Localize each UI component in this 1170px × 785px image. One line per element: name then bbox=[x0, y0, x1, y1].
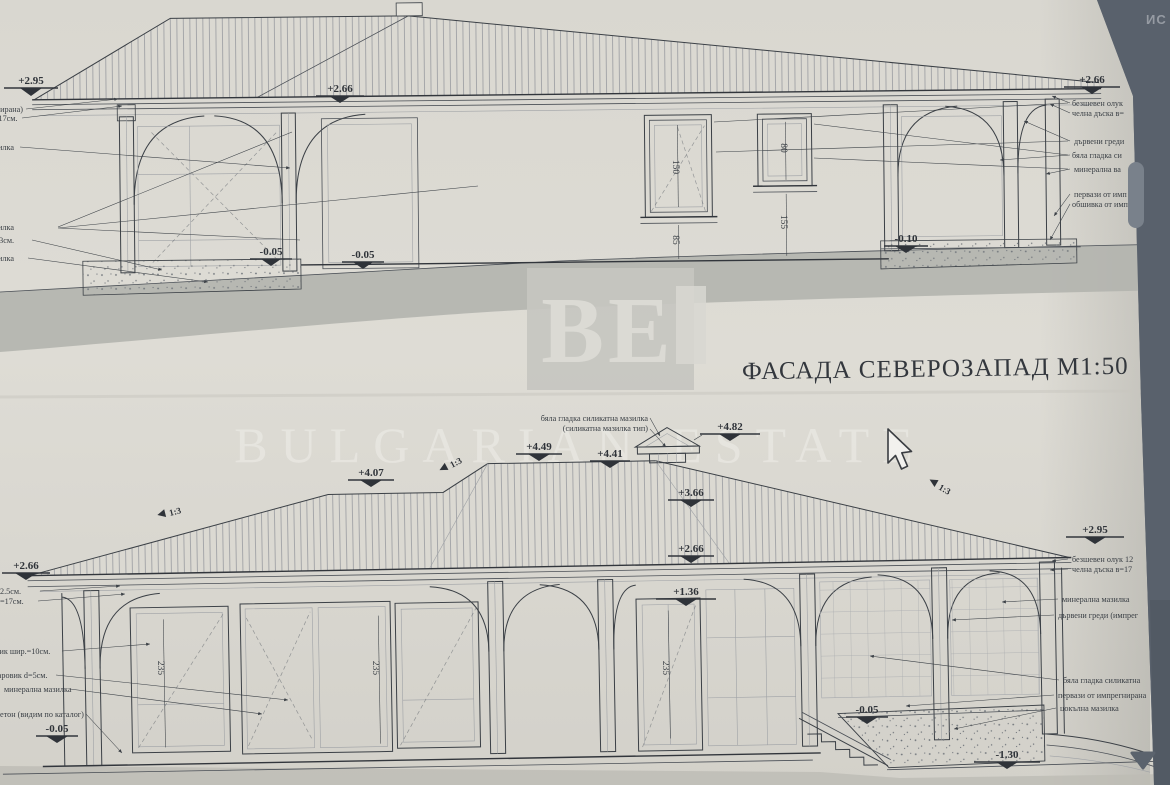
level-mark-label: +4.07 bbox=[358, 467, 384, 479]
corner-text: ИС bbox=[1146, 12, 1167, 27]
level-mark-label: +4.41 bbox=[597, 448, 623, 460]
level-mark-label: -0.10 bbox=[895, 233, 918, 245]
material-note: варовик шир.=10см. bbox=[0, 647, 50, 656]
level-mark-label: -0.05 bbox=[260, 246, 283, 258]
material-note: мазилка bbox=[0, 143, 14, 152]
dim-label: 235 bbox=[660, 661, 670, 676]
level-mark-label: +3.66 bbox=[678, 487, 704, 499]
level-mark-label: +1.36 bbox=[673, 586, 699, 598]
dim-label: 155 bbox=[778, 215, 788, 230]
material-note: бяла гладка силикатна bbox=[1063, 676, 1141, 685]
material-note: цокълна мазилка bbox=[1060, 704, 1119, 713]
level-mark-label: -0.05 bbox=[352, 249, 375, 261]
material-note: безшевен олук bbox=[1072, 99, 1123, 108]
material-note: дървени греди bbox=[1074, 137, 1125, 146]
material-note: обшивка от имп bbox=[1072, 200, 1129, 209]
material-note: минерална ва bbox=[1074, 165, 1121, 174]
level-mark-label: +2.95 bbox=[1082, 524, 1108, 536]
material-note: (импрегнирана) bbox=[0, 105, 23, 114]
blueprint-photo-view: BE BULGARIAN ESTATE bbox=[0, 0, 1170, 785]
material-note: =17см. bbox=[0, 597, 24, 606]
material-note: бетон (видим по каталог) bbox=[0, 710, 84, 719]
material-note: бяла гладка си bbox=[1072, 151, 1122, 160]
material-note: 2.5см. bbox=[0, 587, 21, 596]
level-mark-label: +4.49 bbox=[526, 441, 552, 453]
material-note: первази от импрегнирана bbox=[1058, 691, 1147, 700]
material-note: мазилка bbox=[0, 223, 14, 232]
dim-label: 235 bbox=[370, 661, 380, 676]
material-note: первази от имп bbox=[1074, 190, 1127, 199]
material-note: челна дъска в= bbox=[1072, 109, 1124, 118]
material-note: безшевен олук 12 bbox=[1072, 555, 1133, 564]
dim-label: 85 bbox=[670, 235, 680, 245]
material-note: дървени греди (импрег bbox=[1058, 611, 1139, 620]
level-mark-label: +2.66 bbox=[327, 83, 353, 95]
level-mark-label: +2.66 bbox=[1079, 74, 1105, 86]
level-mark-label: +2.95 bbox=[18, 75, 44, 87]
level-mark-label: +2.66 bbox=[13, 560, 39, 572]
material-note: мазилка bbox=[0, 254, 14, 263]
material-note: челна дъска в=17 bbox=[1072, 565, 1132, 574]
watermark-logo-text: BE bbox=[541, 279, 674, 383]
level-mark-label: -1.30 bbox=[996, 749, 1019, 761]
material-note: (силикатна мазилка тип) bbox=[563, 424, 648, 433]
level-mark-label: +4.82 bbox=[717, 421, 743, 433]
material-note: варовик d=5см. bbox=[0, 671, 48, 680]
dim-label: 235 bbox=[155, 661, 165, 676]
drawing-title: ФАСАДА СЕВЕРОЗАПАД М1:50 bbox=[742, 353, 1129, 385]
dim-label: 150 bbox=[670, 160, 680, 175]
level-mark-label: +2.66 bbox=[678, 543, 704, 555]
dim-label: 80 bbox=[778, 143, 788, 153]
material-note: бяла гладка силикатна мазилка bbox=[541, 414, 649, 423]
level-mark-label: -0.05 bbox=[46, 723, 69, 735]
material-note: минерална мазилка bbox=[4, 685, 72, 694]
material-note: в=17см. bbox=[0, 114, 18, 123]
material-note: минерална мазилка bbox=[1062, 595, 1130, 604]
level-mark-label: -0.05 bbox=[856, 704, 879, 716]
scrollbar-thumb[interactable] bbox=[1128, 162, 1144, 228]
watermark-logo: BE bbox=[527, 268, 706, 390]
material-note: и d=3см. bbox=[0, 236, 14, 245]
